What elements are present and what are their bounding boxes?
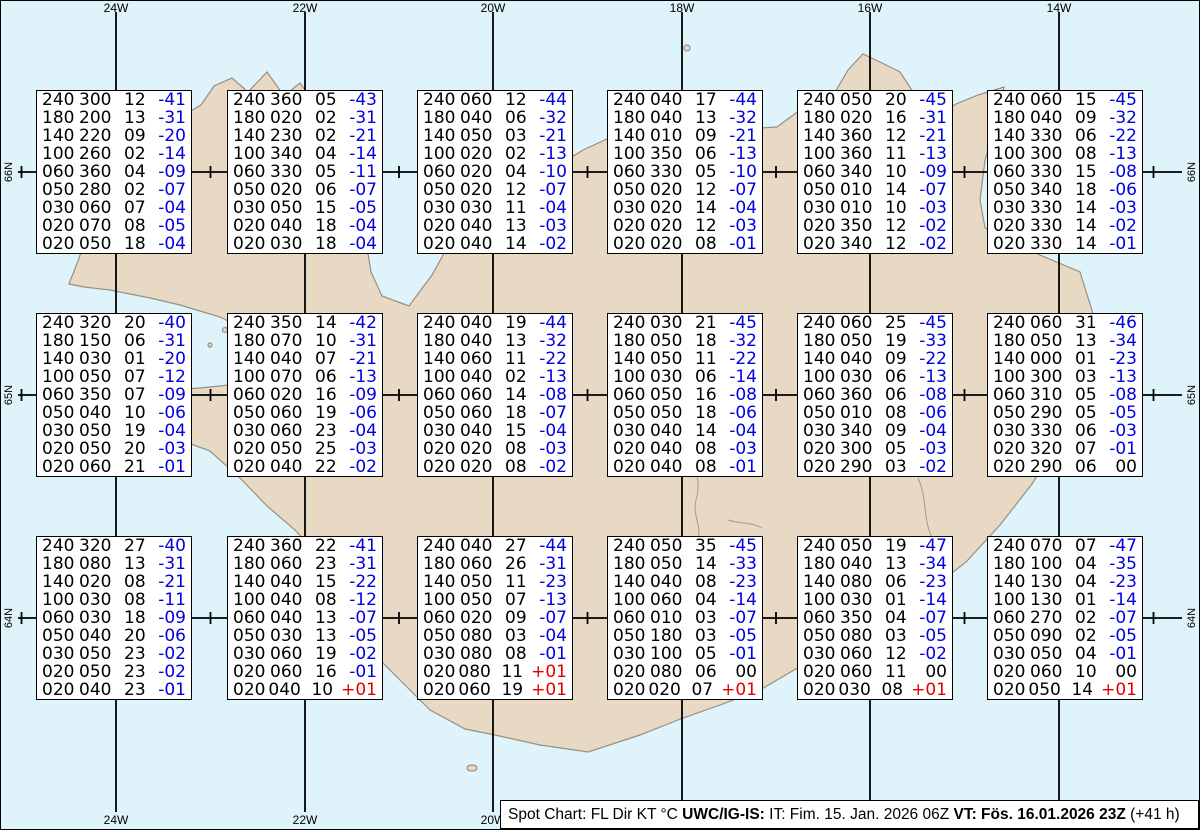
dir-value: 040	[460, 235, 505, 253]
temp-value: -08	[726, 386, 757, 404]
station-row: 10007006-13	[233, 368, 377, 386]
fl-value: 020	[993, 663, 1030, 681]
kt-value: 14	[695, 422, 726, 440]
meridian-label-top: 20W	[481, 1, 506, 15]
fl-value: 180	[233, 555, 270, 573]
kt-value: 22	[315, 537, 346, 555]
station-row: 14003001-20	[42, 350, 186, 368]
dir-value: 050	[1028, 681, 1071, 699]
station-row: 02007008-05	[42, 217, 186, 235]
station-row: 10004002-13	[423, 368, 567, 386]
station-row: 10003008-11	[42, 591, 186, 609]
temp-value: -45	[726, 314, 757, 332]
fl-value: 020	[233, 235, 270, 253]
station-row: 06004013-07	[233, 609, 377, 627]
fl-value: 020	[803, 458, 840, 476]
meridian-label-top: 16W	[858, 1, 883, 15]
kt-value: 23	[315, 555, 346, 573]
kt-value: 10	[885, 163, 916, 181]
station-row: 02030005-03	[803, 440, 947, 458]
station-row: 10003006-13	[803, 368, 947, 386]
kt-value: 12	[885, 235, 916, 253]
kt-value: 12	[695, 181, 726, 199]
temp-value: -13	[916, 145, 947, 163]
dir-value: 060	[650, 591, 695, 609]
temp-value: -03	[726, 440, 757, 458]
dir-value: 360	[270, 91, 315, 109]
fl-value: 030	[803, 422, 840, 440]
kt-value: 12	[885, 127, 916, 145]
kt-value: 12	[505, 181, 536, 199]
fl-value: 060	[613, 163, 650, 181]
temp-value: -32	[726, 332, 757, 350]
kt-value: 12	[885, 217, 916, 235]
kt-value: 05	[885, 440, 916, 458]
dir-value: 320	[1030, 440, 1075, 458]
fl-value: 060	[423, 386, 460, 404]
fl-value: 020	[42, 235, 79, 253]
station-box: 24004027-4418006026-3114005011-231000500…	[417, 536, 573, 700]
dir-value: 020	[650, 181, 695, 199]
station-row: 02004008-01	[613, 458, 757, 476]
dir-value: 080	[840, 573, 885, 591]
dir-value: 350	[840, 217, 885, 235]
dir-value: 360	[270, 537, 315, 555]
station-row: 24006012-44	[423, 91, 567, 109]
temp-value: -04	[726, 199, 757, 217]
kt-value: 01	[1075, 350, 1106, 368]
dir-value: 040	[460, 109, 505, 127]
dir-value: 050	[79, 235, 124, 253]
dir-value: 020	[650, 199, 695, 217]
temp-value: -02	[155, 645, 186, 663]
kt-value: 23	[124, 663, 155, 681]
station-row: 18006023-31	[233, 555, 377, 573]
station-row: 06002009-07	[423, 609, 567, 627]
station-row: 14002008-21	[42, 573, 186, 591]
kt-value: 23	[124, 645, 155, 663]
station-row: 02004014-02	[423, 235, 567, 253]
station-row: 06006014-08	[423, 386, 567, 404]
fl-value: 100	[233, 145, 270, 163]
fl-value: 020	[423, 681, 458, 699]
fl-value: 050	[233, 404, 270, 422]
kt-value: 31	[1075, 314, 1106, 332]
station-row: 03010005-01	[613, 645, 757, 663]
station-row: 03034009-04	[803, 422, 947, 440]
fl-value: 140	[993, 350, 1030, 368]
dir-value: 040	[270, 573, 315, 591]
station-row: 02004008-03	[613, 440, 757, 458]
temp-value: -44	[536, 91, 567, 109]
dir-value: 060	[270, 663, 315, 681]
station-row: 18005014-33	[613, 555, 757, 573]
kt-value: 03	[695, 609, 726, 627]
meridian-label-top: 18W	[670, 1, 695, 15]
dir-value: 060	[270, 645, 315, 663]
station-row: 02003018-04	[233, 235, 377, 253]
temp-value: -03	[155, 440, 186, 458]
dir-value: 040	[79, 627, 124, 645]
temp-value: -05	[1106, 404, 1137, 422]
info-text-segment: Spot Chart: FL Dir KT °C	[508, 806, 682, 823]
dir-value: 290	[840, 458, 885, 476]
station-row: 03033006-03	[993, 422, 1137, 440]
station-row: 02004023-01	[42, 681, 186, 699]
dir-value: 360	[79, 163, 124, 181]
fl-value: 240	[42, 537, 79, 555]
dir-value: 000	[1030, 350, 1075, 368]
station-row: 18010004-35	[993, 555, 1137, 573]
kt-value: 01	[885, 591, 916, 609]
temp-value: -01	[726, 235, 757, 253]
kt-value: 13	[695, 109, 726, 127]
dir-value: 050	[840, 332, 885, 350]
kt-value: 11	[885, 663, 916, 681]
station-box: 24036022-4118006023-3114004015-221000400…	[227, 536, 383, 700]
fl-value: 240	[42, 91, 79, 109]
parallel-label-right: 66N	[1185, 157, 1199, 187]
temp-value: -02	[155, 663, 186, 681]
temp-value: -31	[536, 555, 567, 573]
temp-value: -22	[726, 350, 757, 368]
station-box: 24005020-4518002016-3114036012-211003601…	[797, 90, 953, 254]
station-box: 24032027-4018008013-3114002008-211000300…	[36, 536, 192, 700]
kt-value: 22	[315, 458, 346, 476]
fl-value: 180	[423, 332, 460, 350]
kt-value: 07	[1075, 440, 1106, 458]
station-row: 14004007-21	[233, 350, 377, 368]
temp-value: -41	[346, 537, 377, 555]
station-row: 02004010+01	[233, 681, 377, 699]
station-row: 05004010-06	[42, 404, 186, 422]
fl-value: 140	[423, 573, 460, 591]
dir-value: 040	[460, 422, 505, 440]
dir-value: 010	[840, 404, 885, 422]
dir-value: 340	[840, 163, 885, 181]
kt-value: 16	[315, 386, 346, 404]
fl-value: 020	[803, 663, 840, 681]
kt-value: 25	[885, 314, 916, 332]
fl-value: 020	[993, 217, 1030, 235]
station-row: 06031005-08	[993, 386, 1137, 404]
fl-value: 050	[423, 627, 460, 645]
temp-value: -02	[916, 235, 947, 253]
fl-value: 100	[42, 145, 79, 163]
kt-value: 15	[505, 422, 536, 440]
station-row: 10030008-13	[993, 145, 1137, 163]
kt-value: 07	[1075, 537, 1106, 555]
fl-value: 020	[42, 663, 79, 681]
dir-value: 320	[79, 537, 124, 555]
station-row: 14006011-22	[423, 350, 567, 368]
kt-value: 08	[505, 440, 536, 458]
dir-value: 060	[840, 663, 885, 681]
station-box: 24003021-4518005018-3214005011-221000300…	[607, 313, 763, 477]
temp-value: -34	[1106, 332, 1137, 350]
temp-value: -11	[346, 163, 377, 181]
station-box: 24035014-4218007010-3114004007-211000700…	[227, 313, 383, 477]
dir-value: 030	[650, 368, 695, 386]
temp-value: -44	[536, 537, 567, 555]
station-row: 02029003-02	[803, 458, 947, 476]
kt-value: 14	[505, 235, 536, 253]
station-row: 02005020-03	[42, 440, 186, 458]
fl-value: 030	[42, 199, 79, 217]
dir-value: 060	[270, 422, 315, 440]
station-row: 02005018-04	[42, 235, 186, 253]
fl-value: 050	[233, 181, 270, 199]
fl-value: 020	[993, 681, 1028, 699]
kt-value: 18	[124, 235, 155, 253]
kt-value: 09	[885, 350, 916, 368]
dir-value: 230	[270, 127, 315, 145]
fl-value: 060	[423, 609, 460, 627]
station-row: 10004008-12	[233, 591, 377, 609]
temp-value: -07	[916, 181, 947, 199]
fl-value: 240	[613, 537, 650, 555]
dir-value: 030	[270, 235, 315, 253]
dir-value: 060	[79, 458, 124, 476]
kt-value: 05	[1075, 404, 1106, 422]
station-row: 02002007+01	[613, 681, 757, 699]
kt-value: 08	[1075, 145, 1106, 163]
kt-value: 08	[885, 404, 916, 422]
kt-value: 18	[695, 404, 726, 422]
kt-value: 35	[695, 537, 726, 555]
info-bar-text: Spot Chart: FL Dir KT °C UWC/IG-IS: IT: …	[508, 806, 1180, 824]
station-row: 02034012-02	[803, 235, 947, 253]
station-row: 06036006-08	[803, 386, 947, 404]
fl-value: 180	[613, 109, 650, 127]
temp-value: -23	[1106, 573, 1137, 591]
dir-value: 060	[1030, 663, 1075, 681]
kt-value: 13	[505, 217, 536, 235]
temp-value: -21	[726, 127, 757, 145]
fl-value: 180	[803, 109, 840, 127]
fl-value: 180	[42, 332, 79, 350]
station-row: 03005015-05	[233, 199, 377, 217]
dir-value: 040	[270, 458, 315, 476]
dir-value: 030	[840, 368, 885, 386]
dir-value: 300	[79, 91, 124, 109]
fl-value: 060	[42, 386, 79, 404]
temp-value: -06	[916, 404, 947, 422]
kt-value: 03	[885, 627, 916, 645]
dir-value: 060	[1030, 91, 1075, 109]
kt-value: 03	[885, 458, 916, 476]
temp-value: -35	[1106, 555, 1137, 573]
dir-value: 050	[650, 555, 695, 573]
station-row: 18008013-31	[42, 555, 186, 573]
meridian-label-bottom: 22W	[293, 813, 318, 827]
dir-value: 330	[1030, 199, 1075, 217]
temp-value: -04	[155, 235, 186, 253]
temp-value: -03	[726, 217, 757, 235]
dir-value: 050	[1030, 332, 1075, 350]
fl-value: 020	[233, 217, 270, 235]
fl-value: 050	[423, 404, 460, 422]
station-row: 02006019+01	[423, 681, 567, 699]
station-row: 05002012-07	[613, 181, 757, 199]
temp-value: -07	[726, 609, 757, 627]
temp-value: -06	[155, 627, 186, 645]
station-row: 24005019-47	[803, 537, 947, 555]
dir-value: 030	[460, 199, 505, 217]
station-row: 06033015-08	[993, 163, 1137, 181]
temp-value: -03	[1106, 199, 1137, 217]
fl-value: 050	[993, 627, 1030, 645]
temp-value: -21	[536, 127, 567, 145]
fl-value: 140	[423, 350, 460, 368]
fl-value: 180	[993, 109, 1030, 127]
station-row: 10013001-14	[993, 591, 1137, 609]
dir-value: 040	[460, 217, 505, 235]
station-row: 10030003-13	[993, 368, 1137, 386]
temp-value: -07	[346, 181, 377, 199]
info-text-segment: (+41 h)	[1126, 806, 1180, 823]
station-row: 14013004-23	[993, 573, 1137, 591]
station-row: 14033006-22	[993, 127, 1137, 145]
fl-value: 020	[423, 663, 458, 681]
fl-value: 240	[613, 314, 650, 332]
station-row: 02002008-03	[423, 440, 567, 458]
temp-value: -02	[1106, 217, 1137, 235]
fl-value: 020	[42, 440, 79, 458]
kt-value: 15	[1075, 91, 1106, 109]
station-row: 05001014-07	[803, 181, 947, 199]
station-row: 24007007-47	[993, 537, 1137, 555]
fl-value: 020	[613, 681, 648, 699]
station-row: 14004015-22	[233, 573, 377, 591]
dir-value: 030	[838, 681, 881, 699]
fl-value: 020	[803, 217, 840, 235]
kt-value: 20	[885, 91, 916, 109]
fl-value: 030	[423, 645, 460, 663]
dir-value: 360	[840, 127, 885, 145]
station-row: 10006004-14	[613, 591, 757, 609]
fl-value: 020	[803, 235, 840, 253]
kt-value: 11	[505, 573, 536, 591]
station-row: 05029005-05	[993, 404, 1137, 422]
station-row: 02033014-02	[993, 217, 1137, 235]
temp-value: -47	[1106, 537, 1137, 555]
kt-value: 17	[695, 91, 726, 109]
info-text-segment: VT: Fös. 16.01.2026 23Z	[954, 806, 1126, 823]
kt-value: 02	[124, 181, 155, 199]
fl-value: 060	[993, 386, 1030, 404]
fl-value: 030	[803, 199, 840, 217]
station-box: 24006025-4518005019-3314004009-221000300…	[797, 313, 953, 477]
station-row: 14008006-23	[803, 573, 947, 591]
dir-value: 350	[270, 314, 315, 332]
dir-value: 330	[1030, 163, 1075, 181]
temp-value: -02	[346, 645, 377, 663]
fl-value: 020	[233, 440, 270, 458]
fl-value: 100	[42, 591, 79, 609]
parallel-label-left: 66N	[2, 157, 16, 187]
temp-value: -01	[726, 645, 757, 663]
temp-value: -14	[1106, 591, 1137, 609]
dir-value: 020	[460, 163, 505, 181]
fl-value: 180	[803, 555, 840, 573]
dir-value: 020	[648, 681, 691, 699]
temp-value: -04	[346, 422, 377, 440]
kt-value: 19	[885, 537, 916, 555]
kt-value: 02	[1075, 627, 1106, 645]
temp-value: -04	[726, 422, 757, 440]
dir-value: 060	[79, 199, 124, 217]
dir-value: 340	[1030, 181, 1075, 199]
temp-value: -45	[1106, 91, 1137, 109]
fl-value: 030	[233, 199, 270, 217]
station-row: 05006019-06	[233, 404, 377, 422]
fl-value: 020	[423, 235, 460, 253]
dir-value: 040	[460, 368, 505, 386]
fl-value: 100	[423, 145, 460, 163]
station-row: 05028002-07	[42, 181, 186, 199]
temp-value: -20	[155, 350, 186, 368]
kt-value: 19	[505, 314, 536, 332]
kt-value: 08	[695, 235, 726, 253]
kt-value: 08	[505, 458, 536, 476]
station-row: 18004006-32	[423, 109, 567, 127]
temp-value: -42	[346, 314, 377, 332]
dir-value: 290	[1030, 458, 1075, 476]
kt-value: 06	[885, 573, 916, 591]
fl-value: 240	[613, 91, 650, 109]
fl-value: 180	[42, 555, 79, 573]
dir-value: 050	[460, 127, 505, 145]
info-text-segment: IT: Fim. 15. Jan. 2026 06Z	[765, 806, 954, 823]
dir-value: 030	[270, 627, 315, 645]
fl-value: 020	[993, 458, 1030, 476]
dir-value: 020	[650, 217, 695, 235]
dir-value: 040	[268, 681, 311, 699]
station-row: 14005011-22	[613, 350, 757, 368]
kt-value: 04	[1075, 573, 1106, 591]
dir-value: 100	[1030, 555, 1075, 573]
station-row: 02003008+01	[803, 681, 947, 699]
dir-value: 040	[650, 458, 695, 476]
station-row: 05002006-07	[233, 181, 377, 199]
fl-value: 050	[42, 404, 79, 422]
kt-value: 06	[885, 368, 916, 386]
fl-value: 100	[803, 145, 840, 163]
dir-value: 360	[840, 386, 885, 404]
fl-value: 100	[233, 368, 270, 386]
kt-value: 19	[124, 422, 155, 440]
station-row: 24032027-40	[42, 537, 186, 555]
kt-value: 06	[695, 368, 726, 386]
kt-value: 07	[124, 386, 155, 404]
dir-value: 090	[1030, 627, 1075, 645]
kt-value: 05	[315, 163, 346, 181]
fl-value: 060	[613, 386, 650, 404]
fl-value: 100	[613, 145, 650, 163]
station-row: 05006018-07	[423, 404, 567, 422]
station-row: 02004013-03	[423, 217, 567, 235]
temp-value: -08	[1106, 163, 1137, 181]
fl-value: 030	[613, 422, 650, 440]
kt-value: 09	[885, 422, 916, 440]
temp-value: -46	[1106, 314, 1137, 332]
station-row: 0200601100	[803, 663, 947, 681]
station-row: 14004009-22	[803, 350, 947, 368]
station-row: 18004009-32	[993, 109, 1137, 127]
station-row: 03005023-02	[42, 645, 186, 663]
kt-value: 10	[124, 404, 155, 422]
